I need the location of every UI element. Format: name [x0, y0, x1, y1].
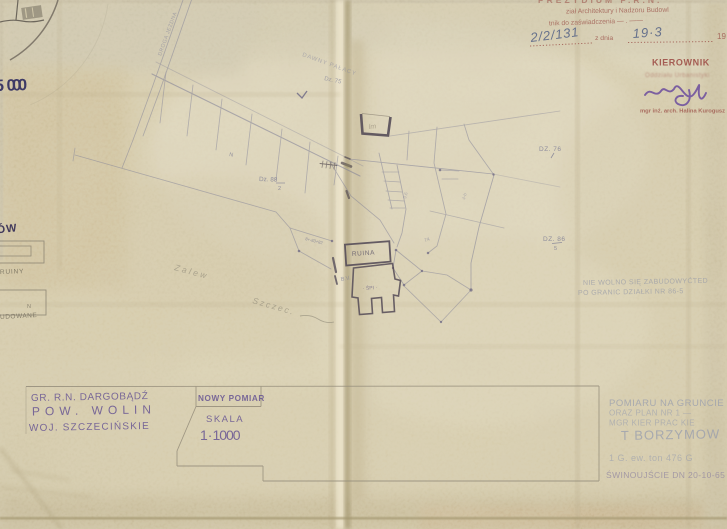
svg-text:POW. WOLIN: POW. WOLIN	[32, 402, 156, 418]
svg-text:mgr inż. arch. Halina Kurogusz: mgr inż. arch. Halina Kurogusz	[640, 109, 725, 115]
svg-text:5: 5	[554, 246, 557, 252]
svg-text:19·3: 19·3	[632, 24, 663, 41]
svg-text:RUINY: RUINY	[0, 268, 24, 276]
svg-text:DZ. 76: DZ. 76	[539, 146, 562, 153]
svg-text:ŚWINOUJŚCIE DN 20-10-65: ŚWINOUJŚCIE DN 20-10-65	[606, 469, 725, 480]
svg-text:19: 19	[717, 32, 726, 41]
svg-text:DZ. 86: DZ. 86	[543, 236, 566, 243]
svg-text:SKALA: SKALA	[206, 414, 244, 425]
svg-text:N: N	[27, 304, 31, 310]
svg-text:KIEROWNIK: KIEROWNIK	[652, 58, 710, 68]
svg-text:Oddziału Urbanistyki: Oddziału Urbanistyki	[645, 72, 710, 79]
svg-text:1 G. ew. ton 476 G: 1 G. ew. ton 476 G	[609, 453, 693, 463]
svg-text:T BORZYMOW: T BORZYMOW	[621, 426, 721, 443]
svg-text:z dnia: z dnia	[595, 35, 613, 42]
svg-text:Dz. 88: Dz. 88	[259, 176, 278, 184]
svg-text:lm: lm	[368, 123, 376, 131]
svg-text:2: 2	[278, 186, 281, 192]
svg-text:NOWY POMIAR: NOWY POMIAR	[198, 394, 265, 403]
svg-text:POMIARU NA GRUNCIE: POMIARU NA GRUNCIE	[609, 398, 724, 409]
svg-text:ORAZ PLAN NR 1 —: ORAZ PLAN NR 1 —	[609, 409, 691, 418]
svg-text:1·1000: 1·1000	[200, 427, 241, 443]
svg-text:PREZYDIUM P.R.N.: PREZYDIUM P.R.N.	[538, 0, 662, 5]
svg-text:ÓW: ÓW	[0, 221, 18, 236]
svg-text:5 000: 5 000	[0, 76, 27, 95]
